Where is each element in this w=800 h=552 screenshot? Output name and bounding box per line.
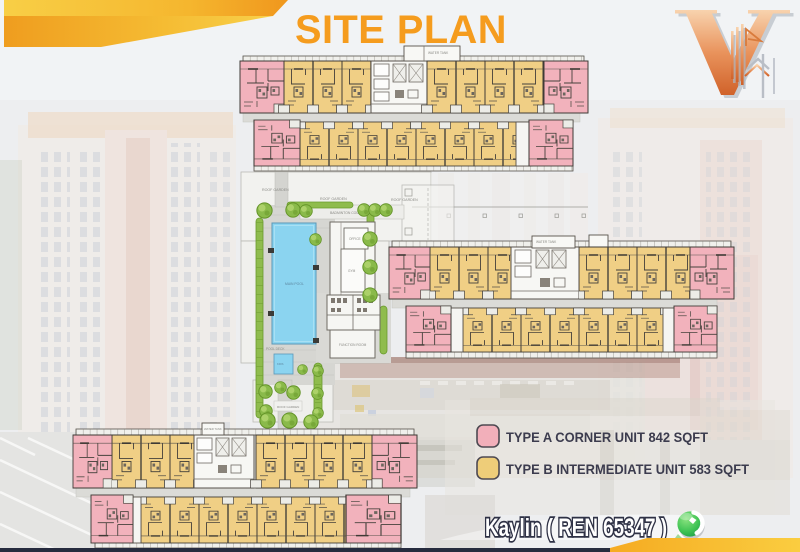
svg-text:SITE PLAN: SITE PLAN <box>295 8 507 52</box>
svg-text:MAIN POOL: MAIN POOL <box>285 282 304 286</box>
svg-text:OFFICE: OFFICE <box>349 237 361 241</box>
svg-text:Kaylin ( REN 65347 ): Kaylin ( REN 65347 ) <box>485 514 667 542</box>
svg-text:ROOF GARDEN: ROOF GARDEN <box>320 197 347 201</box>
svg-text:GYM: GYM <box>348 269 356 273</box>
svg-text:TYPE B INTERMEDIATE UNIT 583 S: TYPE B INTERMEDIATE UNIT 583 SQFT <box>506 462 750 477</box>
svg-text:ROOF GARDEN: ROOF GARDEN <box>262 188 289 192</box>
svg-text:FUNCTION ROOM: FUNCTION ROOM <box>339 343 367 347</box>
svg-text:TYPE A CORNER UNIT 842 SQFT: TYPE A CORNER UNIT 842 SQFT <box>506 430 709 445</box>
svg-text:ROOF GARDEN: ROOF GARDEN <box>277 405 299 409</box>
svg-text:ROOF GARDEN: ROOF GARDEN <box>391 198 418 202</box>
svg-text:KIDS: KIDS <box>277 362 284 366</box>
svg-text:WATER TANK: WATER TANK <box>204 427 222 431</box>
svg-text:WATER TANK: WATER TANK <box>536 240 557 244</box>
svg-text:POOL DECK: POOL DECK <box>266 347 285 351</box>
